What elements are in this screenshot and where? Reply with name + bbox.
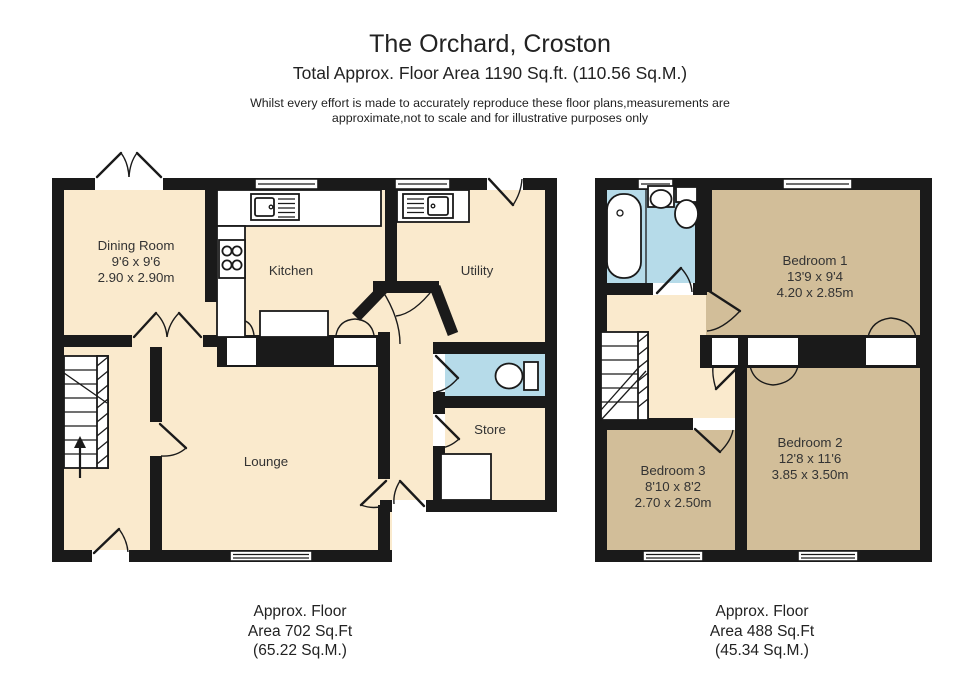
first-floor-area-label: Approx. Floor Area 488 Sq.Ft (45.34 Sq.M… bbox=[710, 602, 814, 661]
ground-floor-area-label: Approx. Floor Area 702 Sq.Ft (65.22 Sq.M… bbox=[248, 602, 352, 661]
bedroom2-label: Bedroom 2 12'8 x 11'6 3.85 x 3.50m bbox=[772, 435, 849, 483]
bedroom3-door bbox=[693, 418, 735, 430]
cupboard-right bbox=[334, 338, 376, 365]
bedroom1-label: Bedroom 1 13'9 x 9'4 4.20 x 2.85m bbox=[777, 253, 854, 301]
bedroom2-doorway bbox=[712, 338, 738, 365]
cupboard-left bbox=[227, 338, 256, 365]
floorplan-page: The Orchard, Croston Total Approx. Floor… bbox=[0, 0, 980, 692]
store-label: Store bbox=[474, 422, 506, 438]
wc-toilet-icon bbox=[496, 362, 539, 390]
utility-label: Utility bbox=[461, 263, 494, 279]
stairs-icon bbox=[64, 356, 108, 468]
lounge-label: Lounge bbox=[244, 454, 288, 470]
ground-floor-plan bbox=[52, 153, 557, 562]
dining-room-label: Dining Room 9'6 x 9'6 2.90 x 2.90m bbox=[98, 238, 175, 286]
bathroom-door bbox=[653, 283, 693, 295]
hob-icon bbox=[219, 240, 245, 278]
bedroom2-window bbox=[798, 551, 858, 561]
dining-french-door bbox=[95, 178, 163, 190]
bedroom2-wardrobe bbox=[748, 338, 798, 365]
chimney-front bbox=[260, 311, 328, 337]
lounge-window bbox=[230, 551, 312, 561]
kitchen-label: Kitchen bbox=[269, 263, 313, 279]
kitchen-sink-icon bbox=[251, 194, 299, 220]
basin-icon bbox=[648, 186, 674, 208]
utility-sink-icon bbox=[397, 190, 469, 222]
front-door bbox=[92, 550, 129, 562]
bedroom3-label: Bedroom 3 8'10 x 8'2 2.70 x 2.50m bbox=[635, 463, 712, 511]
bedroom3-window bbox=[643, 551, 703, 561]
landing-stairs-icon bbox=[601, 332, 648, 420]
toilet-icon bbox=[675, 187, 698, 228]
bedroom1-wardrobe bbox=[866, 338, 916, 365]
floorplan-drawing bbox=[0, 0, 980, 692]
store-cupboard bbox=[441, 454, 491, 500]
bathtub-icon bbox=[607, 190, 646, 283]
